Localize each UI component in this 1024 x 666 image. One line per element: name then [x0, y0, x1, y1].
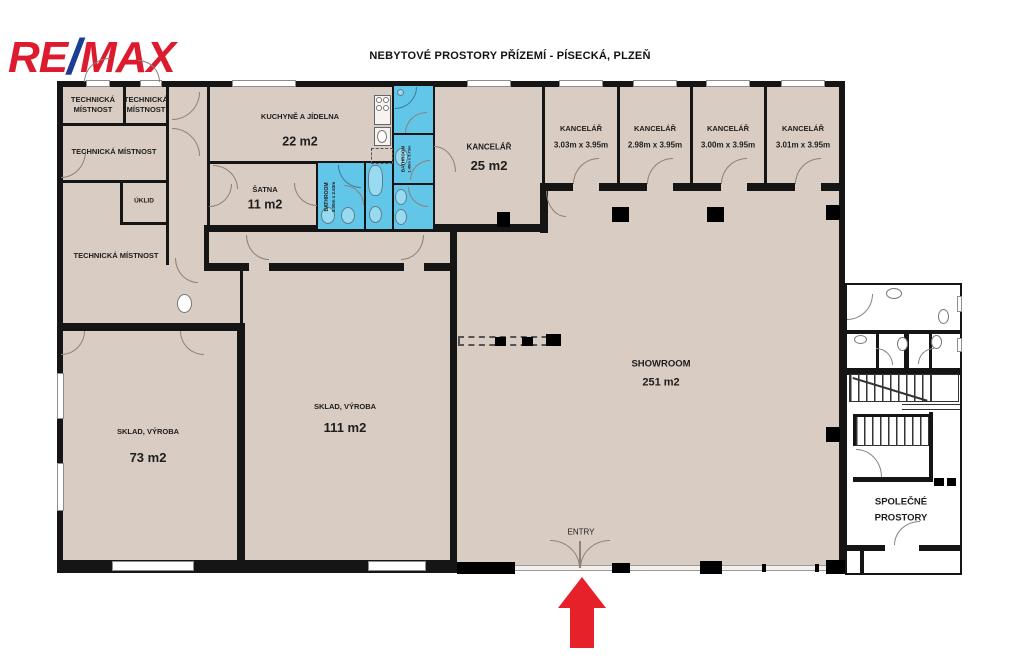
facade-pillar — [700, 561, 722, 574]
annex-wall — [853, 477, 933, 482]
label-technical-4: TECHNICKÁ MÍSTNOST — [74, 251, 159, 261]
door-gap — [647, 183, 673, 191]
window — [232, 80, 296, 87]
label-technical-3: TECHNICKÁ MÍSTNOST — [72, 147, 157, 157]
annex-stub-wall — [860, 551, 864, 573]
toilet-icon — [854, 335, 867, 344]
wall-sklad111-left — [237, 323, 245, 572]
window — [633, 80, 677, 87]
label-line: BATHROOM — [400, 146, 405, 172]
facade-pillar — [762, 564, 766, 572]
facade-pillar — [815, 564, 819, 572]
step-mark — [934, 478, 944, 486]
stair-landing — [931, 374, 959, 402]
window — [467, 80, 511, 87]
appliance-dashed-icon — [371, 148, 393, 164]
door-arc — [138, 60, 160, 82]
toilet-icon — [931, 335, 942, 349]
entry-arrow-icon — [558, 577, 606, 608]
label-line: MÍSTNOST — [127, 105, 166, 114]
toilet-icon — [938, 309, 949, 324]
label-line: TECHNICKÁ — [71, 95, 115, 104]
toilet-icon — [369, 206, 382, 223]
label-technical-1: TECHNICKÁ MÍSTNOST — [71, 95, 115, 115]
label-office-d: KANCELÁŘ — [782, 124, 824, 134]
label-showroom-area: 251 m2 — [642, 376, 679, 391]
label-kitchen-area: 22 m2 — [282, 134, 317, 151]
floorplan-canvas: RE/MAX NEBYTOVÉ PROSTORY PŘÍZEMÍ - PÍSEC… — [0, 0, 1024, 666]
shower-head-icon — [397, 89, 404, 96]
beam-post — [495, 337, 506, 346]
label-office-b: KANCELÁŘ — [634, 124, 676, 134]
staircase-lower — [853, 414, 931, 446]
label-line: BATHROOM — [324, 182, 330, 211]
step-mark — [947, 478, 956, 486]
overhead-beam — [458, 336, 558, 346]
toilet-icon — [395, 209, 407, 225]
passage — [166, 265, 243, 327]
beam-post — [546, 334, 561, 346]
door-gap — [404, 263, 424, 271]
toilet-icon — [897, 337, 908, 351]
label-office-a: KANCELÁŘ — [560, 124, 602, 134]
door-gap — [721, 183, 747, 191]
door-arc — [84, 58, 110, 82]
wall-sklad73-top — [57, 323, 243, 331]
label-line: TECHNICKÁ — [124, 95, 168, 104]
window — [781, 80, 825, 87]
label-office-c: KANCELÁŘ — [707, 124, 749, 134]
facade-pillar — [457, 562, 515, 574]
label-office-25: KANCELÁŘ — [467, 143, 512, 154]
label-line: 3.00m x 2.63m — [330, 182, 336, 213]
entry-arrow-shaft — [570, 606, 594, 648]
wall-showroom-left — [450, 225, 457, 565]
label-showroom: SHOWROOM — [631, 359, 690, 372]
door-gap — [573, 183, 599, 191]
wall-corridor-left — [204, 225, 209, 271]
label-office-b-dims: 2.98m x 3.95m — [628, 141, 682, 152]
pillar — [612, 207, 629, 222]
toilet-icon — [177, 294, 192, 313]
label-bathroom-1: BATHROOM 3.00m x 2.63m — [324, 182, 336, 213]
floor-plan: TECHNICKÁ MÍSTNOST TECHNICKÁ MÍSTNOST TE… — [0, 0, 1024, 666]
label-satna: ŠATNA — [252, 185, 277, 195]
facade-pillar — [826, 560, 845, 574]
toilet-icon — [886, 288, 902, 299]
pillar — [826, 427, 840, 442]
label-office-c-dims: 3.00m x 3.95m — [701, 141, 755, 152]
burner-icon — [376, 97, 382, 103]
label-office-25-area: 25 m2 — [471, 157, 508, 175]
label-common-1: SPOLEČNÉ — [875, 497, 927, 510]
pillar — [497, 212, 510, 227]
pillar — [826, 205, 840, 220]
entry-door-leaf — [579, 541, 581, 568]
label-sklad-73-area: 73 m2 — [130, 449, 167, 467]
room-showroom-lower — [455, 228, 845, 565]
sink-icon — [341, 207, 355, 224]
label-entry: ENTRY — [568, 528, 595, 539]
door-gap — [249, 263, 269, 271]
window — [706, 80, 750, 87]
bathtub-icon — [368, 165, 383, 196]
label-technical-2: TECHNICKÁ MÍSTNOST — [124, 95, 168, 115]
window — [57, 373, 64, 419]
label-line: MÍSTNOST — [74, 105, 113, 114]
facade-pillar — [612, 563, 630, 573]
landing-lines — [902, 404, 960, 410]
window — [957, 338, 962, 352]
window — [368, 561, 426, 571]
beam-post — [522, 337, 533, 346]
annex-wall — [929, 412, 933, 480]
window — [559, 80, 603, 87]
label-office-a-dims: 3.03m x 3.95m — [554, 141, 608, 152]
window — [957, 296, 962, 312]
room-kitchen — [207, 84, 395, 164]
door-gap — [885, 545, 919, 551]
door-gap — [795, 183, 821, 191]
burner-icon — [383, 105, 389, 111]
toilet-icon — [395, 189, 407, 205]
label-line: 1.45m x 5.73m — [406, 145, 411, 172]
window — [112, 561, 194, 571]
label-bathroom-2: BATHROOM 1.45m x 5.73m — [400, 145, 411, 172]
sink-basin-icon — [377, 130, 387, 143]
wall-office25-bottom — [430, 224, 545, 232]
label-kitchen: KUCHYNĚ A JÍDELNA — [261, 112, 339, 122]
label-sklad-111-area: 111 m2 — [324, 419, 367, 437]
label-uklid: ÚKLID — [134, 198, 154, 207]
label-common-2: PROSTORY — [875, 513, 928, 526]
pillar — [707, 207, 724, 222]
burner-icon — [376, 105, 382, 111]
label-sklad-73: SKLAD, VÝROBA — [117, 427, 179, 437]
label-satna-area: 11 m2 — [248, 197, 283, 214]
window — [57, 463, 64, 511]
burner-icon — [383, 97, 389, 103]
label-sklad-111: SKLAD, VÝROBA — [314, 402, 376, 412]
label-office-d-dims: 3.01m x 3.95m — [776, 141, 830, 152]
